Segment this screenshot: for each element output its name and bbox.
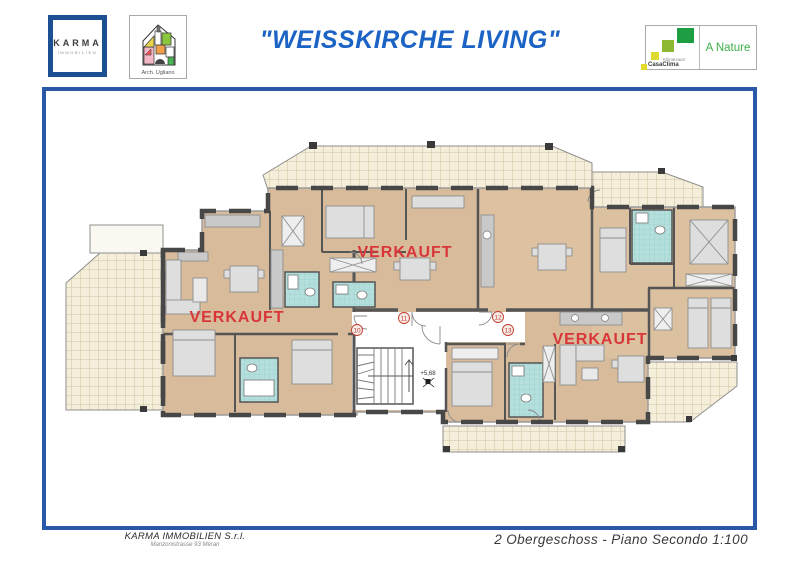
footer-caption: 2 Obergeschoss - Piano Secondo 1:100 xyxy=(494,532,748,547)
unit-number-12: 12 xyxy=(494,315,502,322)
unit-number-13: 13 xyxy=(504,328,512,335)
unit-number-11: 11 xyxy=(401,316,408,323)
sold-label-left: VERKAUFT xyxy=(189,309,284,326)
staircase xyxy=(357,348,413,404)
sold-label-bottom: VERKAUFT xyxy=(552,331,647,348)
footer-address: Manzonistrasse 93 Meran xyxy=(95,542,275,548)
floorplan-drawing: VERKAUFT VERKAUFT VERKAUFT 10 11 12 13 +… xyxy=(0,0,800,565)
elevation-marker: +5,68 xyxy=(420,371,436,377)
sold-label-center: VERKAUFT xyxy=(357,244,452,261)
unit-number-10: 10 xyxy=(353,328,361,335)
footer-company: KARMA IMMOBILIEN S.r.l. xyxy=(95,531,275,542)
